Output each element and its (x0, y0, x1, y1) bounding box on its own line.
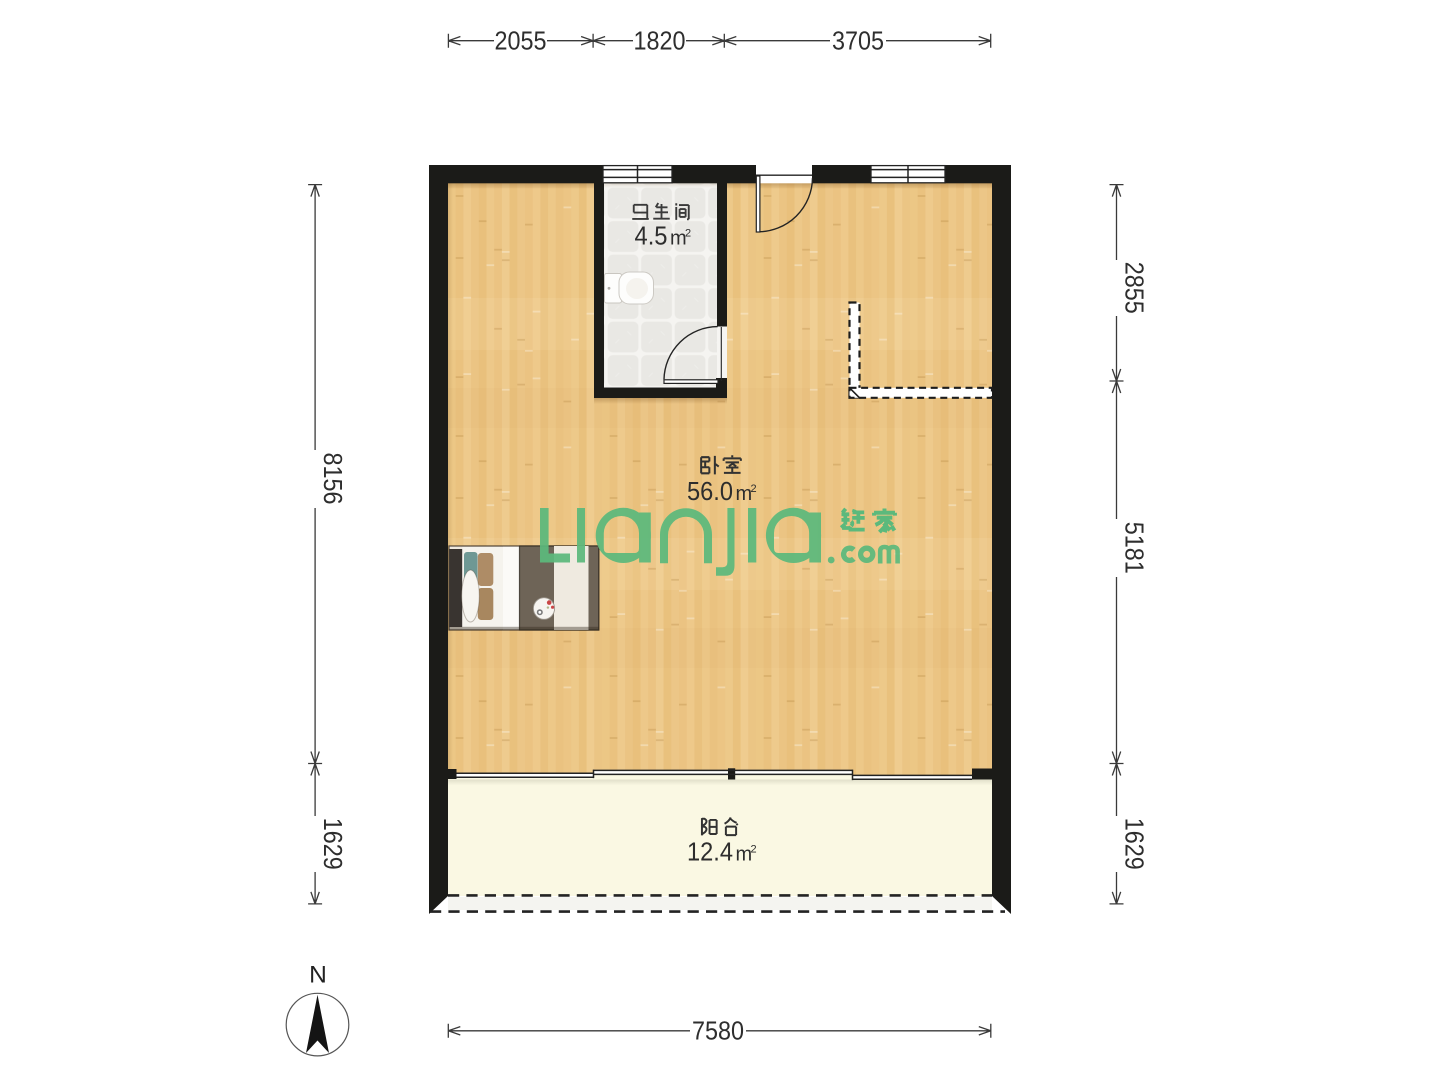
svg-text:4.5: 4.5 (635, 221, 668, 251)
svg-text:1820: 1820 (634, 26, 686, 56)
svg-text:2: 2 (685, 228, 691, 240)
svg-text:3705: 3705 (832, 26, 884, 56)
svg-text:2: 2 (751, 483, 757, 495)
svg-text:N: N (309, 962, 327, 989)
svg-text:2: 2 (751, 844, 757, 856)
svg-text:7580: 7580 (692, 1016, 744, 1046)
svg-text:1629: 1629 (1119, 818, 1149, 870)
svg-text:2055: 2055 (495, 26, 547, 56)
svg-text:56.0: 56.0 (687, 476, 733, 506)
svg-text:5181: 5181 (1119, 522, 1149, 574)
svg-text:8156: 8156 (318, 453, 348, 505)
svg-text:1629: 1629 (318, 818, 348, 870)
svg-text:12.4: 12.4 (687, 837, 733, 867)
svg-text:2855: 2855 (1119, 262, 1149, 314)
